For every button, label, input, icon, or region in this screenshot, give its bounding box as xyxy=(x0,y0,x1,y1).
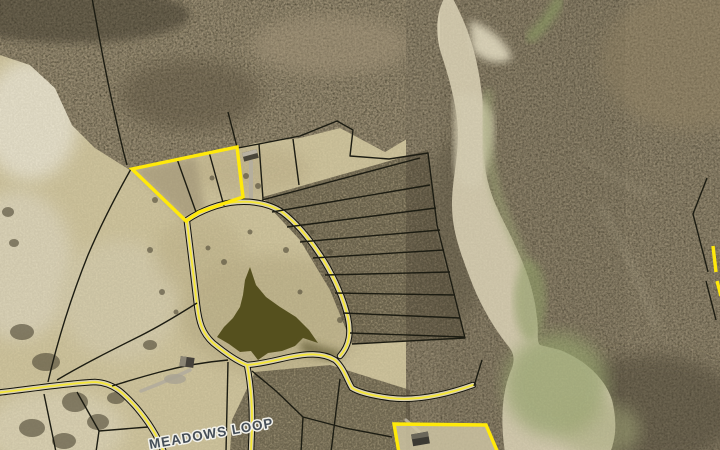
map-canvas[interactable]: MEADOWS LOOP xyxy=(0,0,720,450)
house-west xyxy=(179,356,194,368)
parcel2-clearing xyxy=(394,424,497,450)
creek xyxy=(437,0,640,450)
parcel-map[interactable]: MEADOWS LOOP xyxy=(0,0,720,450)
